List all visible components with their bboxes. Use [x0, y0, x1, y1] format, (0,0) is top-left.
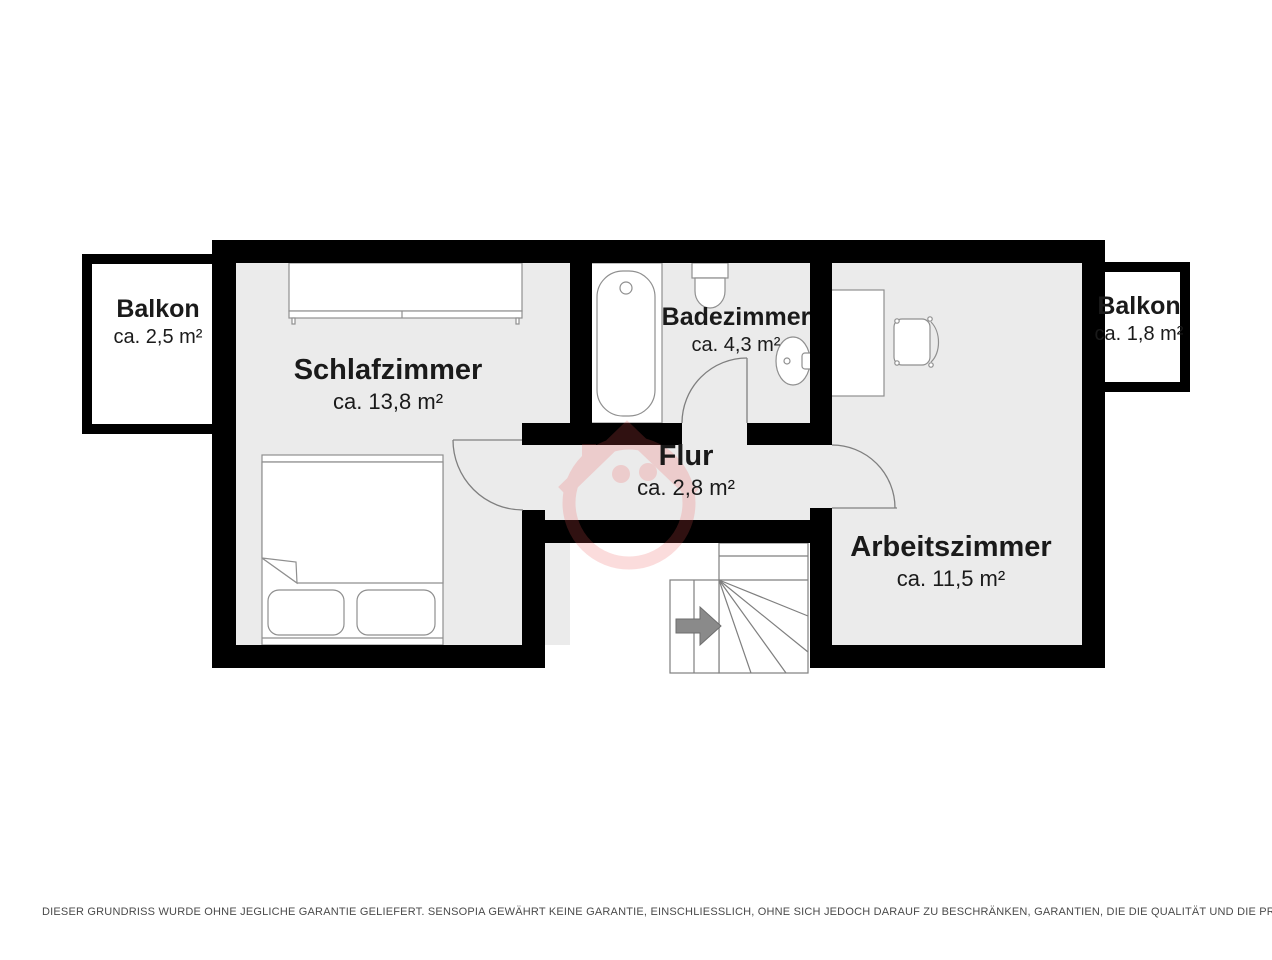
room-area: ca. 2,5 m²	[114, 327, 203, 349]
wall-bedroom-hallway	[522, 510, 545, 668]
wall-west	[212, 240, 236, 668]
room-name: Arbeitszimmer	[850, 532, 1051, 563]
room-label-schlafzimmer: Schlafzimmer ca. 13,8 m²	[294, 355, 483, 414]
staircase	[670, 543, 808, 673]
toilet	[692, 263, 728, 308]
room-label-badezimmer: Badezimmer ca. 4,3 m²	[662, 304, 811, 357]
desk	[830, 290, 884, 396]
footer-disclaimer: DIESER GRUNDRISS WURDE OHNE JEGLICHE GAR…	[42, 906, 1252, 918]
room-area: ca. 13,8 m²	[294, 390, 483, 414]
room-name: Flur	[637, 441, 735, 472]
room-label-arbeitszimmer: Arbeitszimmer ca. 11,5 m²	[850, 532, 1051, 591]
wall-bathroom-office	[810, 240, 832, 423]
room-area: ca. 11,5 m²	[850, 567, 1051, 591]
room-name: Schlafzimmer	[294, 355, 483, 386]
double-bed	[262, 455, 443, 645]
room-area: ca. 1,8 m²	[1095, 324, 1184, 346]
room-label-balkon-left: Balkon ca. 2,5 m²	[114, 296, 203, 349]
stair-upper-run	[719, 543, 808, 673]
wall-office-stairwell	[810, 508, 832, 668]
wall-bedroom-bathroom	[570, 240, 592, 423]
wardrobe	[289, 263, 522, 324]
floor-plan-drawing	[0, 0, 1272, 960]
office-door-opening	[810, 445, 832, 508]
room-area: ca. 4,3 m²	[662, 335, 811, 357]
wall-south-office	[810, 645, 1105, 668]
wall-bathroom-south-right	[747, 423, 832, 445]
room-area: ca. 2,8 m²	[637, 476, 735, 500]
bathtub	[590, 263, 662, 423]
bed-pillow-right	[357, 590, 435, 635]
wall-north	[212, 240, 1105, 263]
room-label-balkon-right: Balkon ca. 1,8 m²	[1095, 293, 1184, 346]
room-name: Badezimmer	[662, 304, 811, 331]
bed-pillow-left	[268, 590, 344, 635]
room-name: Balkon	[114, 296, 203, 323]
floor-plan-page: Balkon ca. 2,5 m² Schlafzimmer ca. 13,8 …	[0, 0, 1272, 960]
room-name: Balkon	[1095, 293, 1184, 320]
wall-south-bedroom	[212, 645, 545, 668]
room-label-flur: Flur ca. 2,8 m²	[637, 441, 735, 500]
bedroom-door-opening	[522, 440, 545, 510]
